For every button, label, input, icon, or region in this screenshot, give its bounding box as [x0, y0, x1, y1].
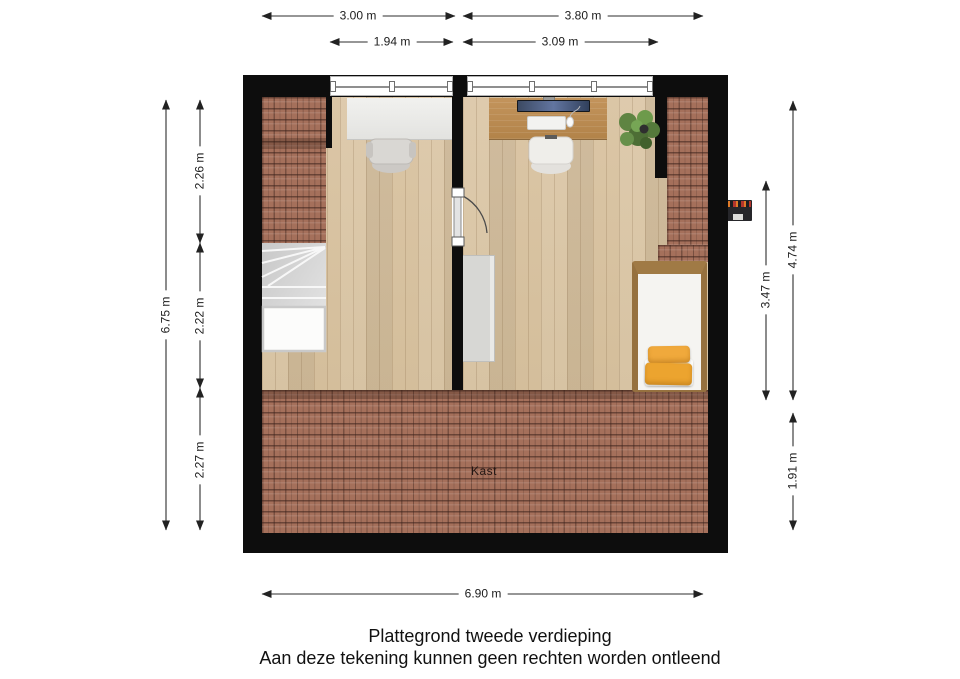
- door-hinge: [452, 237, 464, 246]
- door-arc: [463, 196, 487, 233]
- office-chair-study: [366, 139, 416, 173]
- dimension-label-left-bottom: 2.27 m: [193, 436, 208, 485]
- plant: [619, 110, 660, 149]
- dimension-label-left-middle: 2.22 m: [193, 292, 208, 341]
- door: [452, 188, 487, 246]
- page-disclaimer: Aan deze tekening kunnen geen rechten wo…: [20, 648, 960, 669]
- floor-plan-page: 3.00 m 3.80 m 1.94 m 3.09 m 6.75 m 2.26 …: [0, 0, 960, 679]
- page-title: Plattegrond tweede verdieping: [20, 626, 960, 647]
- computer-mouse: [567, 106, 581, 127]
- dimension-label-left-total: 6.75 m: [159, 291, 174, 340]
- dimension-label-room-left-width: 3.00 m: [334, 9, 383, 24]
- dimension-label-left-top: 2.26 m: [193, 147, 208, 196]
- dimension-label-window-left: 1.94 m: [368, 35, 417, 50]
- door-hinge: [452, 188, 464, 197]
- office-chair-bedroom: [529, 135, 573, 174]
- dimension-label-window-right: 3.09 m: [536, 35, 585, 50]
- dimension-label-right-rooms: 3.47 m: [759, 266, 774, 315]
- dimension-label-bottom-total: 6.90 m: [459, 587, 508, 602]
- kast-label: Kast: [471, 464, 497, 478]
- stair-landing: [263, 307, 325, 351]
- dimension-label-right-kast: 1.91 m: [786, 447, 801, 496]
- dimension-lines: [166, 16, 793, 594]
- dimension-label-right-total: 4.74 m: [786, 226, 801, 275]
- plan-vector-layer: [0, 0, 960, 679]
- dimension-label-room-right-width: 3.80 m: [559, 9, 608, 24]
- door-leaf: [454, 197, 461, 237]
- stairs: [262, 243, 326, 352]
